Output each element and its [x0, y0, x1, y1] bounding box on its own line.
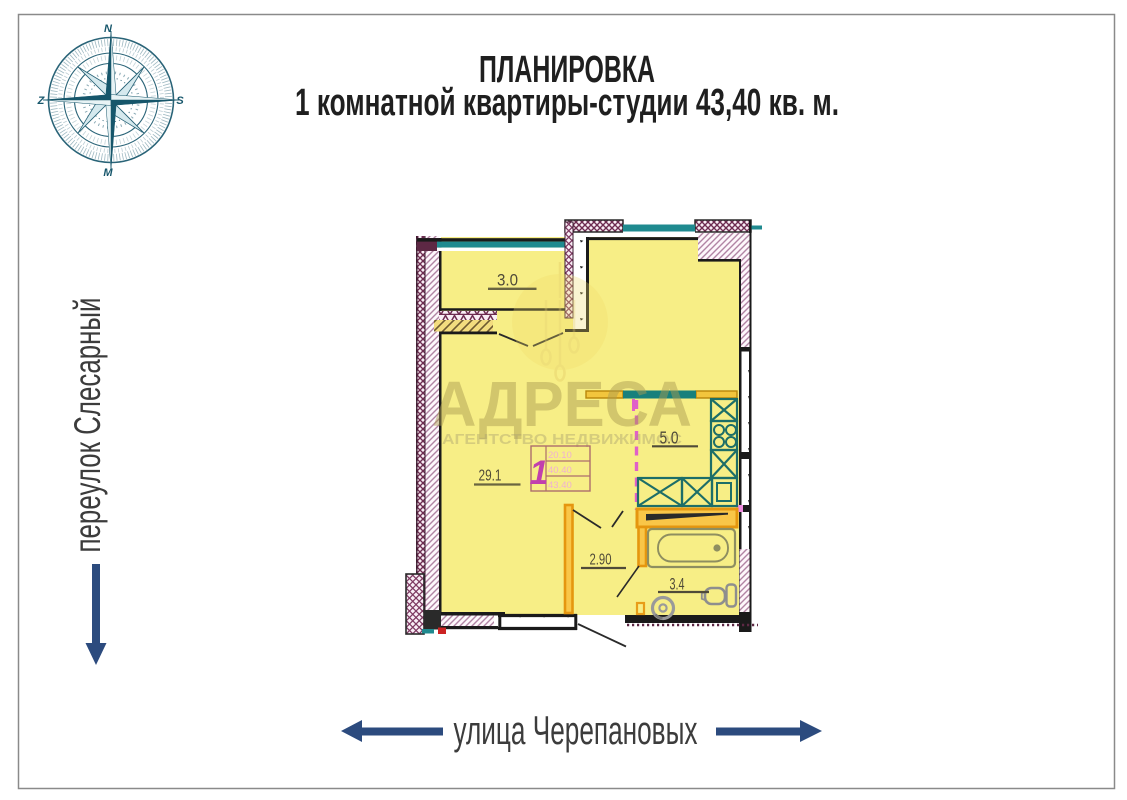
svg-text:S: S [176, 95, 184, 107]
svg-text:40.40: 40.40 [548, 465, 572, 476]
svg-text:3.0: 3.0 [497, 271, 518, 290]
svg-text:1: 1 [530, 454, 549, 492]
svg-text:5.0: 5.0 [660, 428, 679, 448]
svg-text:1 комнатной квартиры-студии 43: 1 комнатной квартиры-студии 43,40 кв. м. [295, 82, 839, 124]
svg-text:2.90: 2.90 [590, 552, 612, 569]
svg-text:20.10: 20.10 [548, 450, 572, 461]
svg-text:Z: Z [37, 95, 46, 107]
svg-text:АДРЕСА: АДРЕСА [432, 368, 692, 440]
svg-text:N: N [104, 23, 113, 35]
svg-text:43.40: 43.40 [548, 480, 572, 491]
svg-text:29.1: 29.1 [479, 468, 502, 485]
svg-text:улица Черепановых: улица Черепановых [454, 709, 698, 753]
svg-text:переулок Слесарный: переулок Слесарный [67, 298, 108, 553]
svg-text:3.4: 3.4 [670, 576, 685, 594]
svg-text:M: M [103, 167, 113, 179]
